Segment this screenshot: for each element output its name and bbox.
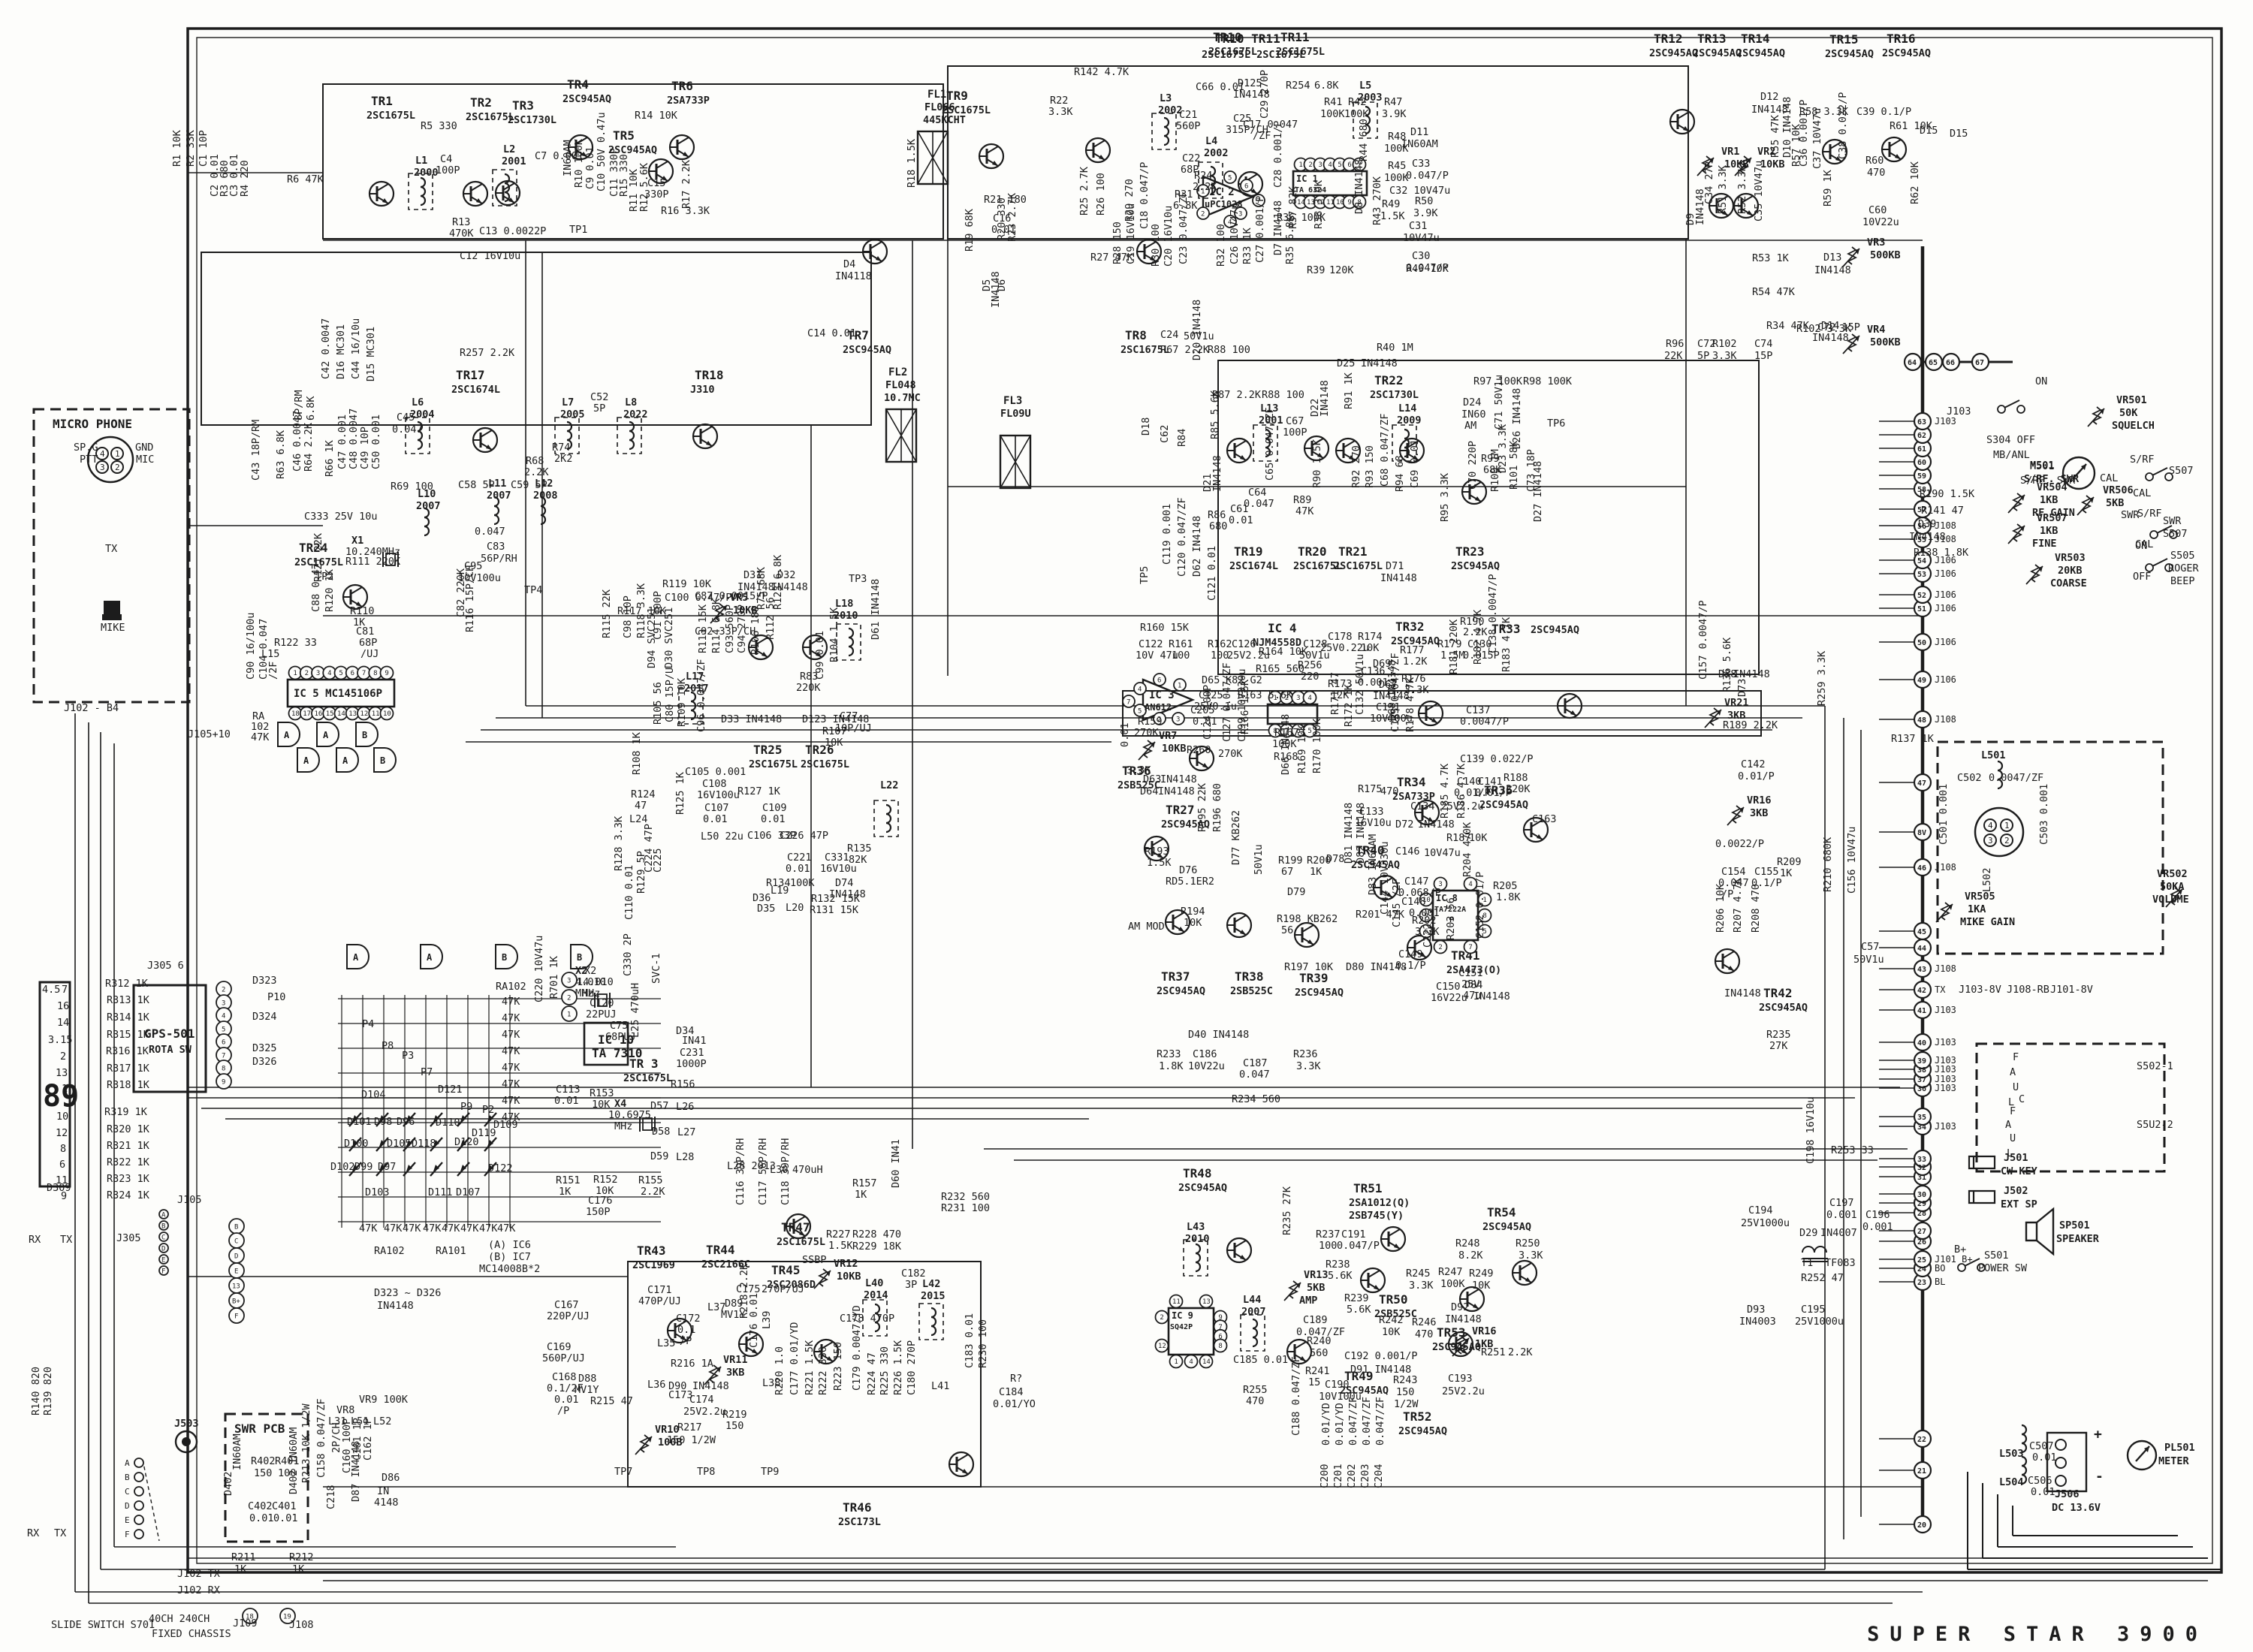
label: R249 (1469, 1268, 1494, 1280)
label: 1000P (676, 1058, 707, 1070)
label: 0.01 (786, 863, 810, 875)
label: D90 (668, 1380, 686, 1392)
label: C62 (1159, 425, 1171, 443)
label: R28 150 (1111, 222, 1123, 264)
label: J106 (1935, 674, 1956, 685)
label: R316 1K (106, 1045, 149, 1057)
label: R247 (1438, 1266, 1463, 1278)
label: 2SC1675L (623, 1072, 672, 1084)
label: 100 (1319, 1240, 1337, 1252)
label: C127 0.047/ZF (1221, 662, 1233, 742)
label: TR50 (1379, 1292, 1408, 1307)
filter-FL1: FL1FL066445KCHT (918, 89, 966, 184)
label: BL (1935, 1277, 1945, 1287)
label: J105 (177, 1194, 202, 1206)
label: TR17 (456, 368, 485, 382)
label: R47 (1384, 96, 1402, 108)
label: L1 (415, 155, 427, 167)
label: A (125, 1458, 130, 1468)
gate-B: B (356, 722, 378, 746)
label: 2SC1730L (1370, 389, 1419, 401)
label: R38 3.9K (1313, 179, 1325, 229)
label: FIXED CHASSIS (152, 1628, 231, 1640)
label: 1KB (2040, 525, 2058, 537)
label: METER (2158, 1455, 2190, 1467)
label: 13 (1202, 1298, 1211, 1306)
label: 2SC945AQ (1759, 1002, 1808, 1014)
label: 21 (1917, 1467, 1926, 1476)
pot-VR3: VR3500KB (1843, 237, 1901, 267)
label: 10V47u (1424, 847, 1461, 859)
label: D73 (1736, 679, 1748, 697)
label: A (284, 730, 290, 740)
label: 2SC1675L (777, 1236, 825, 1248)
transistor-TR12: TR122SC945AQ (1649, 32, 1698, 134)
label: 13 (348, 710, 357, 718)
label: L7 (562, 396, 574, 408)
label: R89 (1293, 494, 1311, 506)
label: 15P (1754, 350, 1772, 362)
label: J105+10 (188, 728, 231, 740)
label: 1.2K (1403, 656, 1428, 668)
label: SQUELCH (2112, 420, 2155, 432)
label: R135 (847, 843, 872, 855)
label: 6 (59, 1159, 65, 1171)
label: 2SC173L (838, 1516, 881, 1528)
label: C33 (1412, 158, 1430, 170)
label: 4148 (374, 1497, 399, 1509)
label: R203 56 (1445, 897, 1457, 940)
label: 2SC1674L (451, 384, 500, 396)
label: IN4148 (377, 1300, 414, 1312)
label: R115 22K (601, 589, 613, 638)
label: BO (1935, 1263, 1945, 1274)
label: C11 330P (608, 148, 620, 197)
label: IC 5 MC145106P (294, 688, 382, 700)
label: C126 (1232, 638, 1256, 650)
label: J106 (1935, 589, 1956, 600)
label: C190 (1325, 1379, 1350, 1391)
label: R124 (631, 788, 656, 800)
label: R22 (1050, 95, 1068, 107)
coil-L503: L503 (1999, 1425, 2026, 1460)
label: 29 (1917, 1200, 1926, 1208)
label: 2SC945AQ (843, 344, 891, 356)
label: 0.047/P (1406, 170, 1449, 182)
label: IN4118 (835, 270, 872, 282)
label: RA102 (374, 1245, 405, 1257)
label: 16 (315, 710, 323, 718)
label: C157 0.0047/P (1697, 600, 1709, 680)
label: B (362, 730, 367, 740)
label: SVC-1 (650, 953, 662, 984)
label: R170 100K (1311, 718, 1323, 773)
label: 1 (567, 1011, 571, 1019)
label: D7 IN4148 (1272, 200, 1284, 255)
label: IN4148 (1418, 818, 1455, 831)
label: R241 (1305, 1365, 1330, 1377)
label: 47K (403, 1222, 421, 1234)
label: C137 (1466, 704, 1491, 716)
transistor-TR18: TR18J310 (690, 368, 724, 448)
label: RA101 (436, 1245, 466, 1257)
label: R12 5.6K (638, 162, 650, 212)
label: VR506 (2103, 484, 2134, 496)
label: 34 (1917, 1123, 1926, 1132)
label: R155 (638, 1174, 663, 1186)
label: 220P/UJ (547, 1310, 590, 1322)
label: A (161, 1212, 166, 1219)
label: IN4148 (692, 1380, 729, 1392)
label: 25V1000u (1795, 1316, 1844, 1328)
label: IN4007 (1820, 1227, 1857, 1239)
label: MIKE (101, 622, 125, 634)
label: C38 0.022/P (1837, 92, 1849, 159)
label: 2007 (487, 490, 511, 502)
label: 0.1 (677, 1324, 695, 1336)
label: 12 (360, 710, 369, 718)
label: C191 (1341, 1228, 1366, 1241)
label: 12 (1158, 1343, 1166, 1350)
gate-A: A (336, 748, 358, 772)
label: IN4148 (1158, 785, 1195, 797)
label: TP6 (1547, 418, 1565, 430)
label: D121 (438, 1084, 463, 1096)
label: R86 (1208, 509, 1226, 521)
label: C141 (1478, 776, 1503, 788)
label: 27 (1917, 1228, 1926, 1236)
label: ROTA SW (149, 1044, 192, 1056)
label: 4 (222, 1013, 225, 1020)
schematic-sheet: TR12SC1675LTR22SC1675LTR32SC1730LTR42SC9… (0, 0, 2253, 1652)
label: TR6 (671, 79, 693, 93)
label: S/RF (2137, 508, 2162, 520)
label: D79 (1287, 886, 1305, 898)
label: TP5 (1139, 566, 1151, 584)
label: R227 (826, 1228, 851, 1241)
block-label-swr-pcb: SWR PCB (234, 1421, 285, 1436)
label: CAL (2133, 487, 2151, 499)
label: R52 3.3K (1736, 164, 1748, 214)
label: CW KEY (2001, 1165, 2038, 1177)
label: TR1 (371, 94, 393, 108)
label: TR 3 (629, 1057, 659, 1071)
label: R213 10K 1/2W (300, 1403, 312, 1483)
label: C4 (440, 153, 452, 165)
label: 65 (1929, 359, 1938, 367)
label: 2.2K (641, 1186, 665, 1198)
label: SSBP (802, 1254, 827, 1266)
label: SLIDE SWITCH S701 (51, 1619, 155, 1631)
label: R31 (1175, 188, 1193, 200)
label: 15 (1308, 1376, 1320, 1388)
label: D82 IN4148 (1355, 803, 1367, 864)
label: S502-1 (2137, 1060, 2173, 1072)
label: 0.047 (475, 526, 505, 538)
label: 150 (725, 1420, 743, 1432)
label: 2.2K (1193, 181, 1217, 193)
label: SP.G (74, 442, 98, 454)
label: C42 0.0047 (320, 318, 332, 379)
label: R88 100 (1262, 389, 1304, 401)
label: TR20 (1298, 544, 1327, 559)
label: TP3 (849, 573, 867, 585)
label: 1.5K (1380, 210, 1405, 222)
label: (B) IC7 (488, 1251, 531, 1263)
pot-VR13: VR135KBAMP (1284, 1269, 1329, 1307)
label: J108 (1935, 520, 1956, 531)
label: 48 (1917, 716, 1926, 725)
label: L43 (1187, 1221, 1205, 1233)
label: R41 (1324, 96, 1342, 108)
label: D10 IN4148 (1781, 97, 1793, 158)
label: R321 1K (107, 1140, 150, 1152)
label: 8 (1218, 1343, 1222, 1350)
label: C57 (1861, 941, 1879, 953)
label: TP1 (569, 224, 587, 236)
label: D72 (1395, 818, 1413, 831)
label: 2SC1675L (801, 758, 849, 770)
label: 50 (1917, 639, 1926, 647)
label: C26 10V47u (1229, 203, 1241, 264)
label: R95 3.3K (1439, 472, 1451, 522)
label: B (161, 1223, 165, 1231)
label: L14 (1398, 402, 1416, 415)
label: C39 0.1/P (1856, 106, 1911, 118)
label: 3KB (1750, 807, 1768, 819)
label: J102 RX (177, 1584, 220, 1596)
label: TR21 (1338, 544, 1368, 559)
label: R94 68 (1394, 455, 1406, 492)
label: S304 OFF (1986, 434, 2035, 446)
label: R314 1K (107, 1011, 150, 1023)
label: 20KB (2058, 565, 2083, 577)
crystal-X4: X410.6975MHz (608, 1098, 655, 1132)
label: DC 13.6V (2052, 1502, 2101, 1514)
transistor-TR38: TR382SB525C (1227, 913, 1273, 997)
label: C83 (487, 541, 505, 553)
label: L27 (677, 1126, 695, 1138)
label: D99 (354, 1161, 372, 1173)
label: 10KB (1162, 743, 1187, 755)
label: R238 (1326, 1259, 1350, 1271)
label: 2.2K (1508, 1346, 1533, 1358)
label: C95 (464, 560, 482, 572)
label: S5U2-2 (2137, 1119, 2173, 1131)
label: 1 (1178, 683, 1181, 690)
label: 0.047 (392, 424, 423, 436)
label: 4 (1468, 881, 1472, 888)
label: AMP (1299, 1295, 1317, 1307)
label: C64 (1248, 487, 1266, 499)
label: 4 (1307, 695, 1311, 702)
label: TP8 (697, 1466, 715, 1478)
label: ROGER (2168, 562, 2200, 574)
label: R141 47 (1921, 505, 1964, 517)
label: L3 (1160, 92, 1172, 104)
label: C184 (999, 1386, 1024, 1398)
label: D122 (488, 1162, 513, 1174)
label: 2009 (1397, 415, 1422, 427)
label: R251 (1481, 1346, 1506, 1358)
label: IN4148 (990, 271, 1002, 308)
label: R208 470 (1750, 884, 1762, 933)
label: B (125, 1473, 130, 1482)
label: C174 (689, 1394, 714, 1406)
label: C120 0.047/ZF (1176, 497, 1188, 577)
label: L504 (1999, 1476, 2024, 1488)
label: D102 (330, 1161, 355, 1173)
label: C167 (554, 1299, 579, 1311)
label: C121 0.01 (1206, 546, 1218, 601)
label: R248 (1455, 1237, 1480, 1250)
jack-J502: J502EXT SP (1969, 1185, 2037, 1210)
label: D (125, 1501, 130, 1511)
label: C105 0.001 (685, 766, 746, 778)
label: 3 (100, 463, 105, 472)
label: D107 (456, 1186, 481, 1198)
label: 10K (1382, 1326, 1401, 1338)
label: 12 (56, 1127, 68, 1139)
label: 1K (292, 1563, 305, 1575)
label: R160 15K (1140, 622, 1190, 634)
label: FL2 (888, 366, 907, 378)
label: R254 (1286, 80, 1310, 92)
label: D402 IN60AM (288, 1427, 300, 1494)
label: L2 (503, 143, 515, 155)
label: C110 0.01 (623, 865, 635, 920)
label: 100K (1344, 108, 1369, 120)
label: C193 (1448, 1373, 1473, 1385)
label: D87 IN4148 (350, 1441, 362, 1502)
label: R320 1K (107, 1123, 150, 1135)
label: A (353, 952, 359, 963)
label: VR7 (1159, 730, 1177, 742)
label: 5P (1697, 350, 1709, 362)
label: TR16 (1887, 32, 1916, 46)
label: R93 150 (1364, 445, 1376, 488)
label: F (2010, 1105, 2016, 1117)
label: R196 680 (1211, 783, 1223, 832)
label: TR53 (1437, 1325, 1466, 1340)
label: R84 (1176, 429, 1188, 447)
label: 1K (855, 1189, 867, 1201)
label: D101 (347, 1116, 372, 1128)
label: 52 (1917, 592, 1926, 600)
label: R5 330 (421, 120, 457, 132)
label: 45 (1917, 928, 1926, 936)
label: C502 (1957, 772, 1982, 784)
label: C9 0.01 (584, 146, 596, 189)
label: R64 2.2K (303, 422, 315, 472)
label: 25V1000u (1741, 1217, 1790, 1229)
gate-A: A (278, 722, 300, 746)
label: 47K (502, 1111, 520, 1123)
label: 2SB745(Y) (1349, 1210, 1404, 1222)
label: 2SC1675L (749, 758, 798, 770)
label: VR13 (1304, 1269, 1329, 1281)
label: C148 (1401, 896, 1426, 908)
label: 35 (1917, 1114, 1926, 1122)
label: R206 10K (1715, 883, 1727, 933)
label: 67 (1975, 359, 1984, 367)
label: 470K (449, 228, 474, 240)
label: 2.2K (524, 466, 549, 478)
label: R91 1K (1343, 372, 1355, 409)
label: C25 (1233, 113, 1251, 125)
label: 2015 (921, 1290, 946, 1302)
label: C24 (1160, 329, 1178, 341)
label: C19 16V10u (1125, 203, 1137, 264)
label: ON (2135, 540, 2147, 552)
label: C71 50V1u (1493, 375, 1505, 430)
label: R231 100 (941, 1202, 990, 1214)
label: TX (105, 543, 117, 555)
label: 2014 (864, 1289, 888, 1301)
label: R14 10K (635, 110, 678, 122)
label: R139 820 (42, 1367, 54, 1415)
label: C150 (1436, 981, 1461, 993)
label: R17 2.2K (680, 159, 692, 209)
label: TR8 (1125, 328, 1147, 342)
label: 7 (62, 984, 68, 996)
label: 0.01/YO (993, 1398, 1036, 1410)
label: C93 560P (724, 604, 736, 653)
label: L41 (931, 1380, 949, 1392)
label: 0.01 (273, 1512, 298, 1524)
label: R53 1K (1752, 252, 1790, 264)
label: D110 (436, 1117, 460, 1129)
label: 8V (1917, 829, 1926, 837)
label: R260 (1187, 744, 1211, 756)
label: 32 (1917, 1164, 1926, 1172)
label: R40 1M (1377, 342, 1413, 354)
label: MIC (136, 454, 154, 466)
label: R55 47K (1769, 114, 1781, 158)
label: - (2095, 1469, 2104, 1485)
label: C169 (547, 1341, 572, 1353)
label: 3.9K (1382, 108, 1407, 120)
label: C20 16V10u (1163, 206, 1175, 267)
label: R204 470K (1461, 821, 1473, 877)
label: R142 4.7K (1074, 66, 1130, 78)
transistor-TR25: TR252SC1675L (749, 635, 798, 770)
label: C34 27P (1703, 161, 1715, 204)
label: C177 0.01/YD (789, 1322, 801, 1395)
label: C146 (1395, 846, 1420, 858)
label: 3.3K (1712, 350, 1737, 362)
label: J103 (1935, 1064, 1956, 1075)
label: R235 (1766, 1029, 1791, 1041)
label: C158 0.047/ZF (315, 1398, 327, 1478)
label: R10 100K (573, 138, 585, 188)
label: IN4148 (1473, 990, 1510, 1002)
label: J108 (1935, 862, 1956, 873)
label: 9 (1347, 199, 1351, 206)
label: D12 (1760, 91, 1778, 103)
label: C28 0.001/P (1272, 121, 1284, 188)
label: 1.5K (828, 1240, 853, 1252)
ic-IC5: 123456789181716151413121110IC 5 MC145106… (288, 667, 394, 720)
label: 61 (1917, 445, 1926, 454)
label: D86 (382, 1472, 400, 1484)
label: 47K (502, 1045, 520, 1057)
label: IN60AM (562, 140, 574, 176)
label: T1 (1801, 1257, 1813, 1269)
label: L6 (412, 396, 424, 408)
label: 0.01 (2032, 1452, 2057, 1464)
label: 2002 (1204, 147, 1229, 159)
